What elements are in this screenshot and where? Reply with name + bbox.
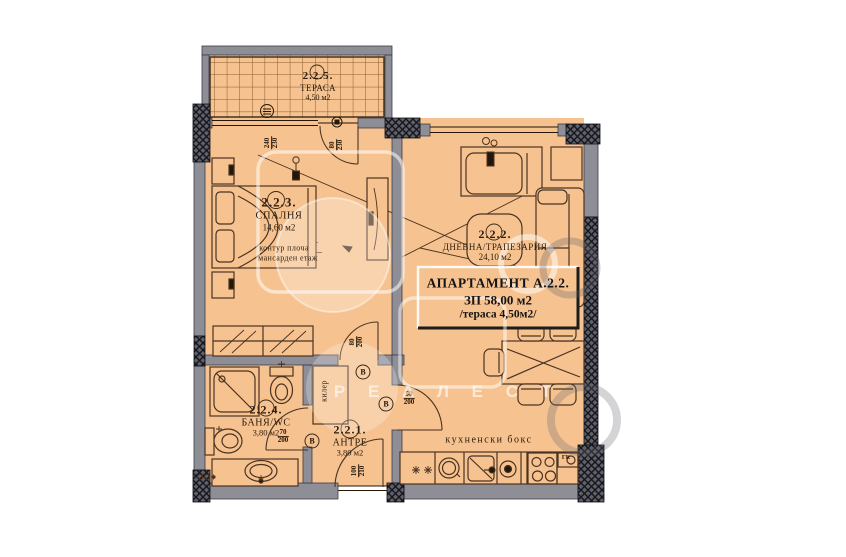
- dim-terrace-window: 240 230: [264, 137, 280, 150]
- kitchen-counter: [400, 452, 578, 484]
- dim-entry-door: 100 210: [351, 465, 367, 478]
- bedroom-label: 2.2.3. СПАЛНЯ 14,60 м2: [256, 195, 303, 232]
- entry-label: 2.2.1. АНТРЕ 3,80 м2: [333, 423, 368, 458]
- closet-label: килер: [319, 380, 328, 402]
- apartment-title: АПАРТАМЕНТ А.2.2.: [427, 276, 570, 292]
- terrace-label: 2.2.5. ТЕРАСА 4,50 м2: [300, 70, 336, 102]
- living-number: 2.2.2.: [443, 228, 548, 242]
- toilet: [270, 361, 293, 404]
- apartment-label: АПАРТАМЕНТ А.2.2. ЗП 58,00 м2 /тераса 4,…: [427, 276, 570, 323]
- dining-table: [502, 341, 584, 384]
- bedroom-name: СПАЛНЯ: [256, 210, 303, 222]
- entry-number: 2.2.1.: [333, 423, 368, 437]
- terrace-name: ТЕРАСА: [300, 83, 336, 93]
- loveseat: [461, 147, 542, 196]
- gas-label: ГК: [562, 455, 570, 461]
- vent-mark-bath: В: [305, 434, 320, 449]
- living-name: ДНЕВНА/ТРАПЕЗАРИЯ: [443, 242, 548, 252]
- apartment-terrace-area: /тераса 4,50м2/: [427, 309, 570, 322]
- slab-note-1: контур плоча: [259, 243, 309, 252]
- washbasin: [212, 459, 298, 486]
- dim-bath-door: 70 200: [278, 429, 289, 445]
- living-label: 2.2.2. ДНЕВНА/ТРАПЕЗАРИЯ 24,10 м2: [443, 228, 548, 262]
- dim-bedroom-door: 80 200: [349, 337, 365, 348]
- vent-mark-bedroom-door: В: [356, 365, 371, 380]
- dresser: [213, 326, 313, 356]
- terrace-railing: [202, 46, 392, 55]
- bedroom-area: 14,60 м2: [256, 222, 303, 232]
- floor-plan-canvas: [0, 0, 846, 557]
- kitchen-label: кухненски бокс: [445, 434, 532, 446]
- floor-plan-page: 2.2.5. ТЕРАСА 4,50 м2 2.2.3. СПАЛНЯ 14,6…: [0, 0, 846, 557]
- slab-note-2: мансарден етаж: [258, 253, 318, 262]
- bedroom-number: 2.2.3.: [256, 195, 303, 210]
- terrace-number: 2.2.5.: [300, 70, 336, 83]
- apartment-built-area: ЗП 58,00 м2: [427, 293, 570, 308]
- side-table: [551, 147, 582, 180]
- terrace-area: 4,50 м2: [300, 93, 336, 102]
- living-area: 24,10 м2: [443, 252, 548, 262]
- watermark-text: Р Е А Л Е С Т: [334, 382, 560, 402]
- dim-terrace-door: 80 230: [329, 140, 345, 151]
- bath-number: 2.2.4.: [241, 403, 290, 417]
- entry-area: 3,80 м2: [333, 449, 368, 459]
